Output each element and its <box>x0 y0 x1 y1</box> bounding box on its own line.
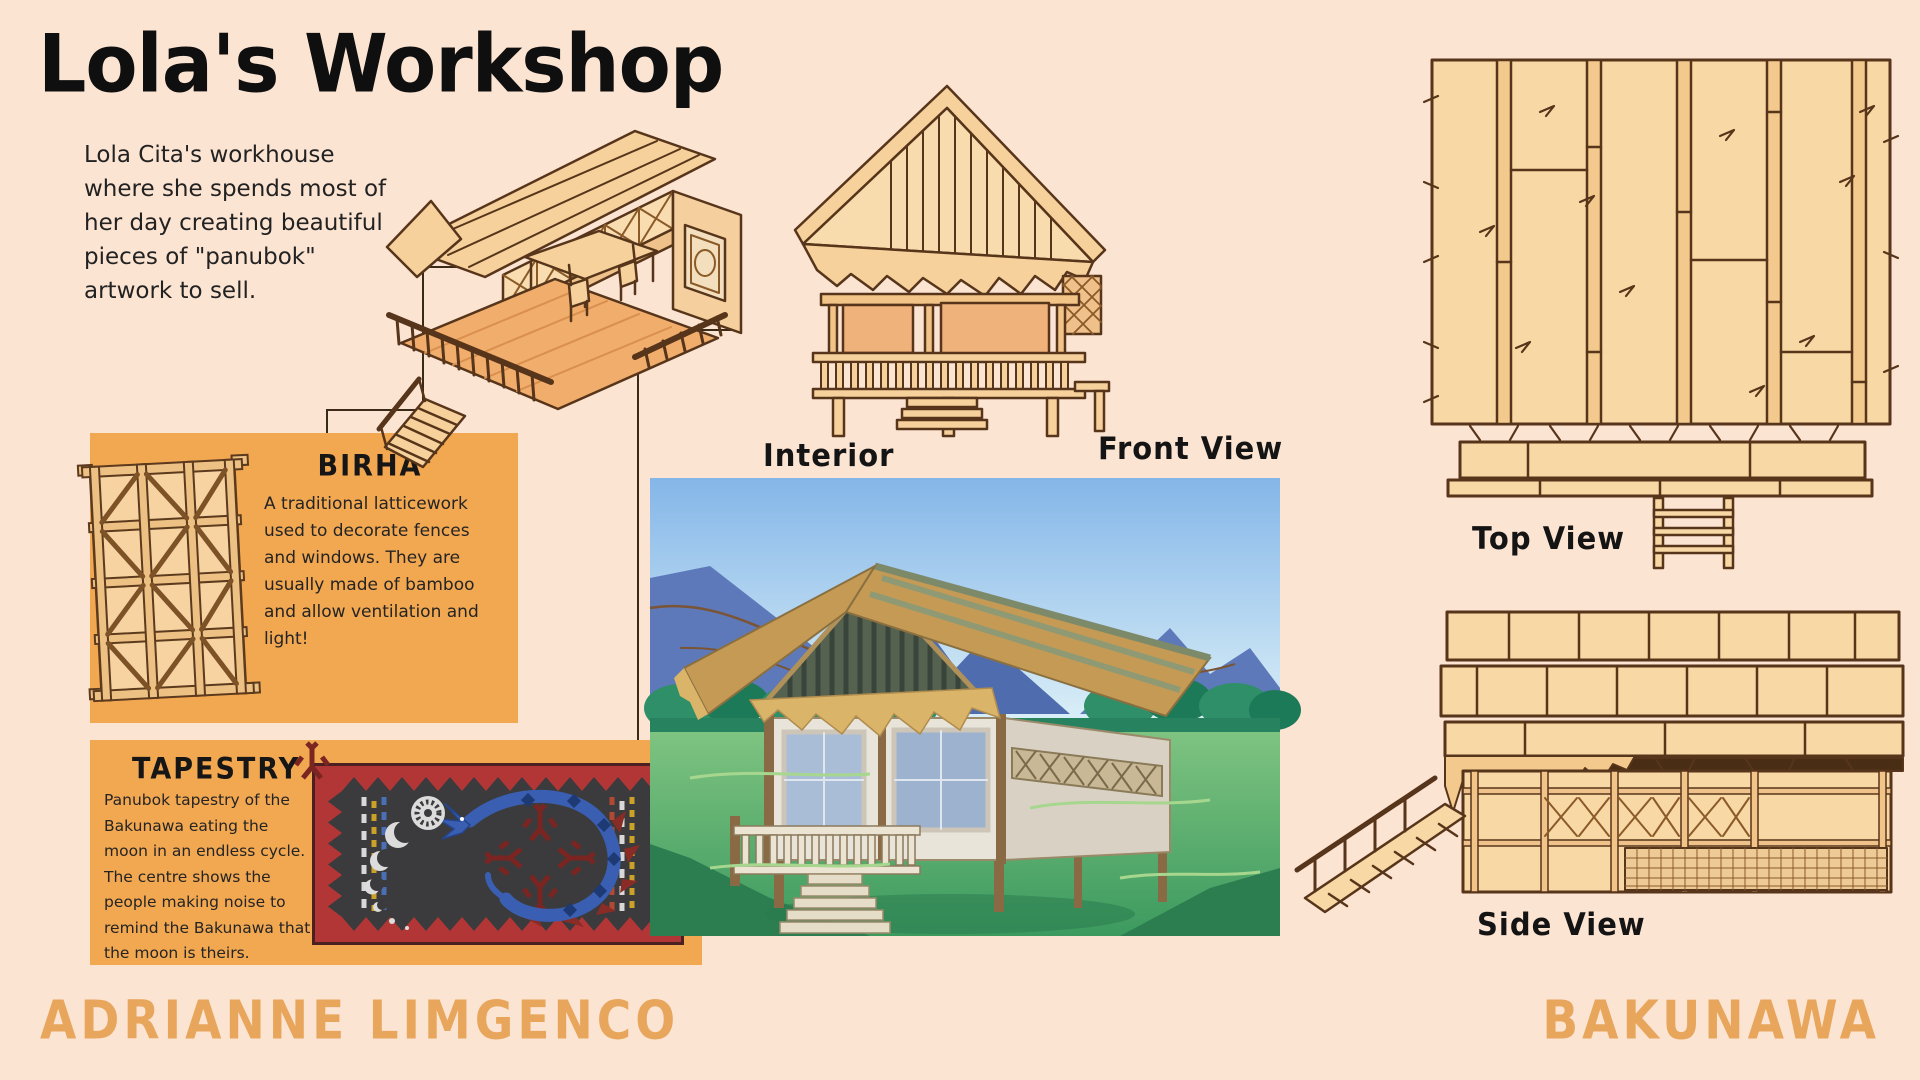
top-view-illustration <box>1420 52 1902 572</box>
intro-paragraph: Lola Cita's workhouse where she spends m… <box>84 138 406 308</box>
ladder <box>1654 498 1733 568</box>
tapestry-title: TAPESTRY <box>132 752 300 786</box>
birha-lattice-illustration <box>84 447 256 715</box>
top-view-label: Top View <box>1472 520 1625 557</box>
interior-view-label: Interior <box>763 437 894 474</box>
tapestry-callout-box: TAPESTRY Panubok tapestry of the Bakunaw… <box>90 740 702 965</box>
side-view-illustration <box>1295 608 1907 938</box>
project-title-credit: BAKUNAWA <box>1542 989 1880 1052</box>
front-view-illustration <box>795 82 1113 442</box>
birha-description: A traditional latticework used to decora… <box>264 491 500 653</box>
interior-illustration <box>373 95 748 480</box>
concept-sheet: Lola's Workshop Lola Cita's workhouse wh… <box>0 0 1920 1080</box>
author-credit: ADRIANNE LIMGENCO <box>40 989 679 1052</box>
front-view-label: Front View <box>1098 430 1283 467</box>
tapestry-description: Panubok tapestry of the Bakunawa eating … <box>104 788 312 967</box>
side-view-label: Side View <box>1477 906 1646 943</box>
tapestry-illustration <box>312 763 684 945</box>
exterior-painting <box>650 478 1280 936</box>
